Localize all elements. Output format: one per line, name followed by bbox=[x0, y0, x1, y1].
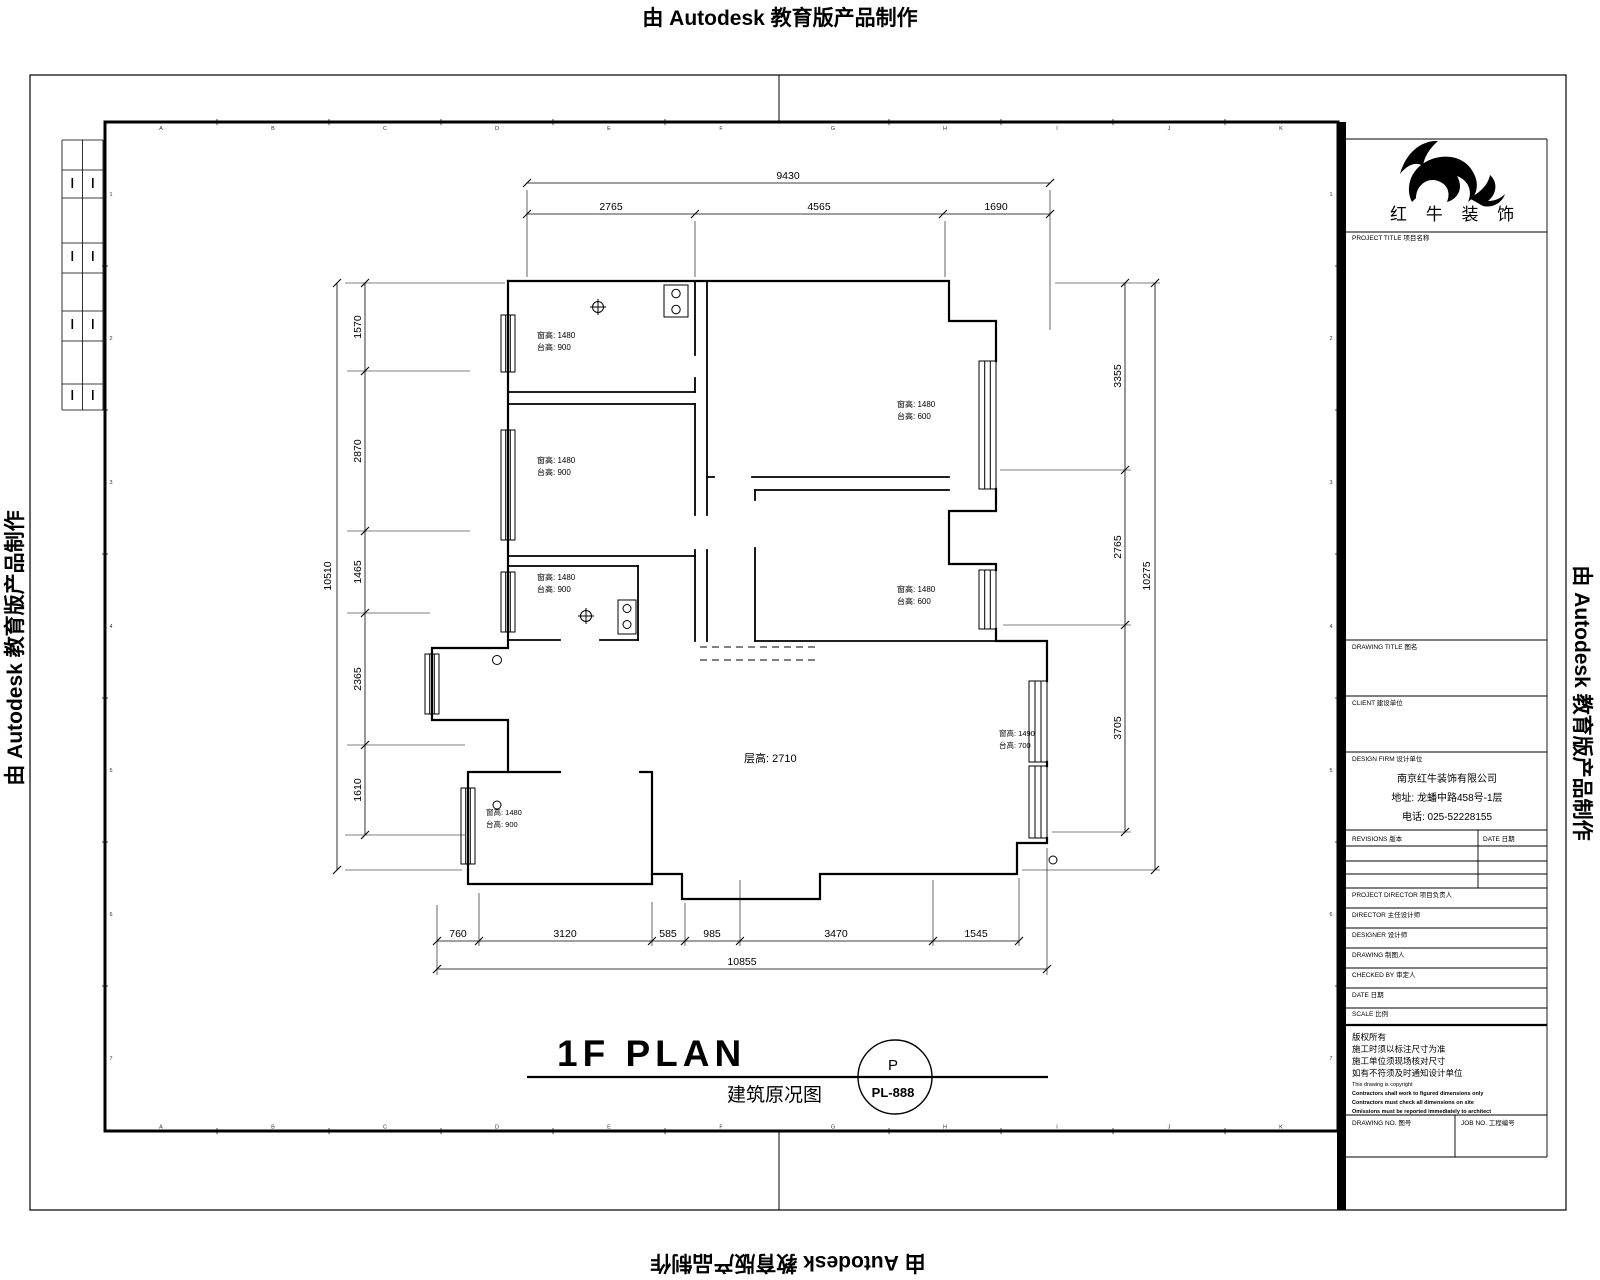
company-phone: 电话: 025-52228155 bbox=[1402, 810, 1493, 823]
grid-col: G bbox=[831, 126, 835, 132]
dimension-texts: 9430 2765 4565 1690 10510 1570 2870 1465… bbox=[322, 170, 1153, 968]
copyright-note-en: This drawing is copyright bbox=[1352, 1082, 1413, 1088]
dim-bottom-seg: 1545 bbox=[964, 928, 988, 940]
grid-col: E bbox=[607, 1125, 611, 1131]
title-row-label: CHECKED BY 审定人 bbox=[1352, 970, 1416, 979]
plan-subtitle: 建筑原况图 bbox=[727, 1084, 822, 1106]
design-firm-label: DESIGN FIRM 设计单位 bbox=[1352, 754, 1423, 763]
copyright-note: 施工单位须现场核对尺寸 bbox=[1352, 1056, 1446, 1066]
dim-left-seg: 2870 bbox=[352, 439, 364, 463]
dim-top-seg: 2765 bbox=[599, 201, 623, 213]
grid-row: 6 bbox=[109, 912, 112, 918]
grid-col: D bbox=[495, 126, 499, 132]
brand-logo-icon bbox=[1400, 141, 1505, 206]
dim-left-seg: 1610 bbox=[352, 778, 364, 802]
copyright-note: 如有不符须及时通知设计单位 bbox=[1352, 1068, 1463, 1078]
dim-left-seg: 2365 bbox=[352, 667, 364, 691]
fixture-circle bbox=[1049, 856, 1057, 864]
revision-date-label: DATE 日期 bbox=[1483, 835, 1515, 843]
dim-right-seg: 3705 bbox=[1112, 716, 1124, 740]
grid-row: 7 bbox=[109, 1056, 112, 1062]
dim-left-total: 10510 bbox=[322, 561, 334, 590]
grid-col: J bbox=[1168, 1125, 1171, 1131]
room-note: 台高: 900 bbox=[537, 584, 571, 594]
dim-bottom-seg: 985 bbox=[703, 928, 721, 940]
revision-strip bbox=[62, 140, 103, 410]
copyright-note-en: Contractors shall work to figured dimens… bbox=[1352, 1091, 1484, 1097]
room-note: 窗高: 1480 bbox=[897, 399, 936, 409]
grid-row: 2 bbox=[109, 336, 112, 342]
room-note: 台高: 900 bbox=[537, 467, 571, 477]
grid-col: I bbox=[1056, 126, 1058, 132]
sheet-ref-number: PL-888 bbox=[872, 1085, 915, 1100]
room-note: 台高: 700 bbox=[999, 740, 1031, 750]
room-note: 台高: 900 bbox=[537, 342, 571, 352]
grid-row: 4 bbox=[1329, 624, 1332, 630]
cad-canvas: A B C D E F G H I J K A B C D E F G H I … bbox=[0, 0, 1600, 1280]
grid-col: C bbox=[383, 1125, 387, 1131]
grid-col: K bbox=[1279, 1125, 1283, 1131]
title-row-label: DESIGNER 设计师 bbox=[1352, 930, 1408, 939]
room-note: 台高: 600 bbox=[897, 411, 931, 421]
grid-col: F bbox=[719, 126, 723, 132]
company-address: 地址: 龙蟠中路458号-1层 bbox=[1391, 791, 1502, 804]
dim-right-seg: 3355 bbox=[1112, 364, 1124, 388]
dim-left-seg: 1570 bbox=[352, 315, 364, 339]
grid-row: 5 bbox=[109, 768, 112, 774]
grid-col: E bbox=[607, 126, 611, 132]
grid-col: G bbox=[831, 1125, 835, 1131]
grid-col: A bbox=[159, 126, 163, 132]
dim-right-total: 10275 bbox=[1141, 561, 1153, 590]
window-symbols bbox=[425, 315, 1047, 864]
job-no-label: JOB NO. 工程编号 bbox=[1461, 1118, 1515, 1127]
fixture-circle bbox=[493, 656, 502, 665]
room-note: 窗高: 1480 bbox=[537, 330, 576, 340]
dim-ticks bbox=[333, 179, 1159, 973]
room-note: 窗高: 1480 bbox=[897, 584, 936, 594]
title-row-label: SCALE 比例 bbox=[1352, 1009, 1388, 1018]
plan-fixtures bbox=[493, 285, 1058, 864]
copyright-note: 版权所有 bbox=[1352, 1032, 1386, 1042]
dim-top-seg: 4565 bbox=[807, 201, 831, 213]
dim-right-seg: 2765 bbox=[1112, 535, 1124, 559]
project-title-label: PROJECT TITLE 项目名称 bbox=[1352, 233, 1430, 242]
grid-row: 1 bbox=[109, 192, 112, 198]
plan-title-group: 1F PLAN 建筑原况图 P PL-888 bbox=[527, 1033, 1048, 1114]
grid-col: K bbox=[1279, 126, 1283, 132]
room-note: 窗高: 1490 bbox=[999, 728, 1035, 738]
grid-row: 3 bbox=[109, 480, 112, 486]
sheet-ref-letter: P bbox=[888, 1057, 898, 1074]
grid-col: B bbox=[271, 126, 275, 132]
revisions-label: REVISIONS 版本 bbox=[1352, 834, 1403, 843]
title-row-label: DIRECTOR 主任设计师 bbox=[1352, 910, 1421, 919]
room-note: 台高: 600 bbox=[897, 596, 931, 606]
dim-left-seg: 1465 bbox=[352, 560, 364, 584]
client-label: CLIENT 建设单位 bbox=[1352, 698, 1403, 707]
grid-row: 5 bbox=[1329, 768, 1332, 774]
grid-col: H bbox=[943, 126, 947, 132]
room-note: 窗高: 1480 bbox=[537, 572, 576, 582]
drawing-title-label: DRAWING TITLE 图名 bbox=[1352, 642, 1417, 651]
grid-col: A bbox=[159, 1125, 163, 1131]
dim-bottom-seg: 585 bbox=[659, 928, 677, 940]
grid-row: 4 bbox=[109, 624, 112, 630]
grid-row: 6 bbox=[1329, 912, 1332, 918]
grid-col: D bbox=[495, 1125, 499, 1131]
ceiling-light-icon bbox=[590, 299, 606, 315]
company-name: 南京红牛装饰有限公司 bbox=[1397, 772, 1497, 785]
brand-name: 红 牛 装 饰 bbox=[1390, 205, 1521, 224]
copyright-note: 施工时须以标注尺寸为准 bbox=[1352, 1044, 1446, 1054]
title-block: 红 牛 装 饰 PROJECT TITLE 项目名称 DRAWING TITLE… bbox=[1346, 139, 1547, 1157]
dim-bottom-seg: 760 bbox=[449, 928, 467, 940]
room-note: 台高: 900 bbox=[486, 819, 518, 829]
plan-title: 1F PLAN bbox=[557, 1033, 746, 1074]
dim-top-total: 9430 bbox=[776, 170, 800, 182]
grid-col: J bbox=[1168, 126, 1171, 132]
grid-row: 1 bbox=[1329, 192, 1332, 198]
ceiling-light-icon bbox=[578, 608, 594, 624]
grid-row: 2 bbox=[1329, 336, 1332, 342]
copyright-note-en: Omissions must be reported immediately t… bbox=[1352, 1109, 1491, 1115]
title-row-label: DRAWING 制图人 bbox=[1352, 950, 1405, 959]
grid-row: 7 bbox=[1329, 1056, 1332, 1062]
title-row-label: DATE 日期 bbox=[1352, 991, 1384, 999]
title-row-label: PROJECT DIRECTOR 项目负责人 bbox=[1352, 890, 1453, 899]
room-note: 窗高: 1480 bbox=[537, 455, 576, 465]
dim-bottom-total: 10855 bbox=[727, 956, 756, 968]
sheet-frame bbox=[30, 75, 1566, 1210]
floor-height-label: 层高: 2710 bbox=[744, 751, 797, 765]
dim-bottom-seg: 3470 bbox=[824, 928, 848, 940]
dim-top-seg: 1690 bbox=[984, 201, 1008, 213]
dimensions bbox=[333, 179, 1160, 975]
opening-dashed-lines bbox=[700, 647, 818, 660]
grid-col: H bbox=[943, 1125, 947, 1131]
room-note: 窗高: 1480 bbox=[486, 807, 522, 817]
drawing-no-label: DRAWING NO. 图号 bbox=[1352, 1119, 1412, 1127]
drawing-sheet: 由 Autodesk 教育版产品制作 由 Autodesk 教育版产品制作 由 … bbox=[0, 0, 1600, 1280]
grid-col: B bbox=[271, 1125, 275, 1131]
floor-plan-walls bbox=[432, 281, 1047, 899]
grid-row: 3 bbox=[1329, 480, 1332, 486]
dim-bottom-seg: 3120 bbox=[553, 928, 577, 940]
grid-col: C bbox=[383, 126, 387, 132]
copyright-note-en: Contractors must check all dimensions on… bbox=[1352, 1100, 1474, 1106]
